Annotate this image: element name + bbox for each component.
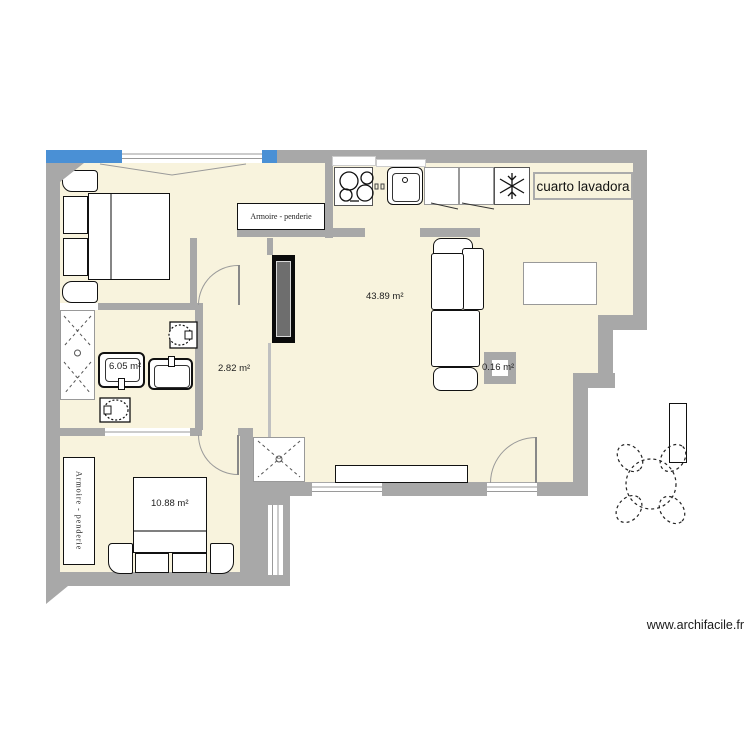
kitchen-sink-basin: [392, 173, 420, 202]
wardrobe-bottom-label: Armoire - penderie: [75, 471, 84, 550]
bed-top-nightstand-2[interactable]: [62, 281, 98, 303]
sideboard[interactable]: [335, 465, 468, 483]
bed-bottom-nightstand-2[interactable]: [210, 543, 234, 574]
bed-top-body[interactable]: [88, 193, 170, 280]
window-shutter-left[interactable]: [46, 150, 122, 163]
wall-vestibule-left[interactable]: [190, 238, 197, 310]
wall-left[interactable]: [46, 150, 60, 586]
coffee-table[interactable]: [523, 262, 597, 305]
kitchen-sink[interactable]: [387, 167, 423, 205]
bed-bottom-pillow-1[interactable]: [135, 553, 169, 573]
wall-right-upper[interactable]: [633, 150, 647, 330]
wall-cabinet-1[interactable]: [332, 156, 376, 166]
area-label-bathroom: 6.05 m²: [109, 361, 141, 372]
bed-bottom-pillow-2[interactable]: [172, 553, 207, 573]
wall-hall-right-top[interactable]: [267, 238, 273, 255]
window-opening-bathroom[interactable]: [60, 303, 98, 310]
kitchen-cabinet-2[interactable]: [459, 167, 494, 205]
stove[interactable]: [334, 167, 373, 206]
wall-bedroom-top-right[interactable]: [325, 163, 333, 238]
radiator[interactable]: [272, 255, 295, 343]
window-bedroom-top[interactable]: [122, 150, 262, 163]
bed-top-pillow-2[interactable]: [63, 238, 88, 276]
kitchen-cabinet-1[interactable]: [424, 167, 459, 205]
wardrobe-top-label: Armoire - penderie: [250, 212, 311, 221]
watermark: www.archifacile.fr: [620, 618, 744, 632]
sink-1-faucet: [118, 378, 125, 390]
sofa-bottom-cushion[interactable]: [433, 367, 478, 391]
wall-kitchen-stub[interactable]: [420, 228, 480, 237]
floor-plan-canvas: Armoire - penderie Armoire - penderie cu…: [0, 0, 750, 750]
sink-2[interactable]: [148, 358, 193, 390]
area-label-hallway: 2.82 m²: [218, 363, 250, 374]
area-label-bedroom-bottom: 10.88 m²: [151, 498, 189, 509]
window-bathroom-wall-2[interactable]: [150, 428, 190, 436]
shower-2[interactable]: [253, 437, 305, 482]
window-shutter-right[interactable]: [262, 150, 277, 163]
wall-right-mid[interactable]: [598, 315, 613, 377]
area-label-column: 0.16 m²: [482, 362, 514, 373]
sofa-back-right[interactable]: [462, 248, 484, 310]
wall-bedroom-bottom-right[interactable]: [240, 436, 253, 482]
window-living-bottom[interactable]: [312, 483, 382, 496]
radiator-core: [276, 261, 291, 337]
sink-2-basin: [154, 365, 190, 388]
bed-top-nightstand-1[interactable]: [62, 170, 98, 192]
bed-bottom-body[interactable]: [133, 477, 207, 553]
wall-hall-partition[interactable]: [268, 343, 271, 440]
wall-right-lower[interactable]: [573, 373, 588, 496]
bed-top-pillow-1[interactable]: [63, 196, 88, 234]
sofa-seat-2[interactable]: [431, 310, 480, 367]
window-bathroom-wall-1[interactable]: [105, 428, 150, 436]
wall-hall-left[interactable]: [195, 310, 203, 430]
wardrobe-top-box[interactable]: Armoire - penderie: [237, 203, 325, 230]
wardrobe-bottom-box[interactable]: Armoire - penderie: [63, 457, 95, 565]
wall-bathroom-bottom-stub[interactable]: [238, 428, 253, 436]
fridge[interactable]: [494, 167, 530, 205]
wall-cabinet-2[interactable]: [376, 159, 426, 167]
shower-1[interactable]: [60, 310, 95, 400]
outside-rectangle[interactable]: [669, 403, 687, 463]
area-label-living: 43.89 m²: [366, 291, 404, 302]
sofa-seat-1[interactable]: [431, 253, 464, 310]
window-entry-sidelight[interactable]: [487, 483, 537, 496]
laundry-room-label: cuarto lavadora: [536, 179, 629, 194]
sink-2-faucet: [168, 356, 175, 367]
laundry-room-box[interactable]: cuarto lavadora: [533, 172, 633, 200]
bed-bottom-nightstand-1[interactable]: [108, 543, 133, 574]
window-center-wall[interactable]: [268, 505, 283, 575]
